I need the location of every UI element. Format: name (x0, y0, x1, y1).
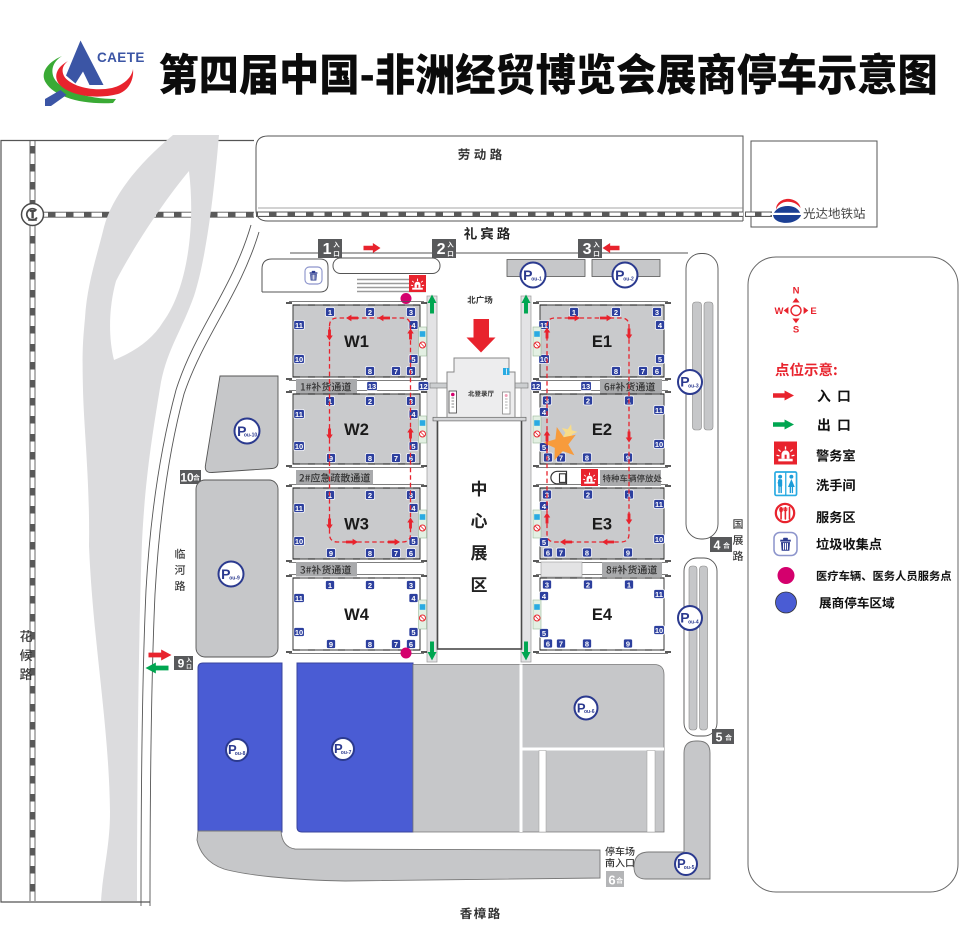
svg-text:13: 13 (368, 382, 376, 391)
svg-text:11: 11 (655, 500, 663, 509)
svg-text:3: 3 (545, 580, 549, 589)
svg-text:8: 8 (585, 548, 589, 557)
svg-text:6: 6 (546, 548, 550, 557)
svg-text:2: 2 (614, 308, 618, 317)
svg-text:8: 8 (368, 549, 372, 558)
svg-text:12: 12 (419, 382, 427, 391)
svg-text:W1: W1 (344, 333, 369, 351)
svg-text:5: 5 (542, 443, 546, 452)
svg-text:9: 9 (626, 548, 630, 557)
svg-text:8: 8 (585, 639, 589, 648)
svg-text:8: 8 (368, 367, 372, 376)
svg-text:5: 5 (411, 355, 415, 364)
svg-text:10: 10 (295, 355, 303, 364)
svg-text:11: 11 (295, 504, 303, 513)
svg-text:W3: W3 (344, 516, 369, 534)
svg-text:6: 6 (546, 639, 550, 648)
svg-text:1: 1 (627, 580, 631, 589)
svg-text:11: 11 (655, 590, 663, 599)
svg-text:CAETE: CAETE (97, 50, 145, 65)
svg-text:W: W (775, 306, 784, 317)
svg-text:10: 10 (180, 471, 194, 485)
svg-text:2: 2 (368, 581, 372, 590)
svg-text:2: 2 (368, 397, 372, 406)
svg-text:S: S (793, 325, 799, 336)
svg-text:ou-7: ou-7 (341, 750, 352, 756)
svg-text:ou-8: ou-8 (235, 751, 246, 757)
svg-text:ou-4: ou-4 (688, 619, 699, 625)
svg-text:13: 13 (582, 382, 590, 391)
svg-text:2: 2 (368, 308, 372, 317)
svg-text:N: N (793, 286, 800, 297)
svg-text:10: 10 (295, 442, 303, 451)
svg-text:3: 3 (409, 581, 413, 590)
svg-text:4: 4 (714, 539, 721, 553)
svg-text:E2: E2 (592, 421, 612, 439)
svg-text:10: 10 (295, 628, 303, 637)
svg-text:2: 2 (368, 491, 372, 500)
svg-text:1: 1 (328, 581, 332, 590)
svg-text:7: 7 (559, 639, 563, 648)
svg-text:11: 11 (655, 406, 663, 415)
svg-text:3: 3 (583, 241, 592, 258)
svg-text:W2: W2 (344, 421, 369, 439)
svg-text:8: 8 (585, 453, 589, 462)
svg-text:5: 5 (411, 537, 415, 546)
svg-text:8: 8 (614, 367, 618, 376)
svg-text:5: 5 (411, 628, 415, 637)
svg-text:9: 9 (626, 639, 630, 648)
svg-text:9: 9 (178, 657, 185, 671)
svg-text:2: 2 (586, 580, 590, 589)
svg-text:7: 7 (559, 453, 563, 462)
svg-text:ou-1: ou-1 (531, 277, 542, 283)
svg-text:6: 6 (409, 640, 413, 649)
svg-text:5: 5 (542, 538, 546, 547)
svg-text:ou-2: ou-2 (623, 277, 634, 283)
svg-text:3: 3 (409, 308, 413, 317)
svg-text:10: 10 (655, 440, 663, 449)
svg-text:ou-5: ou-5 (684, 865, 695, 871)
svg-text:ou-10: ou-10 (244, 433, 258, 439)
svg-text:5: 5 (542, 629, 546, 638)
svg-text:8: 8 (368, 640, 372, 649)
svg-text:10: 10 (295, 537, 303, 546)
svg-text:6: 6 (608, 873, 615, 888)
svg-text:ou-3: ou-3 (688, 383, 699, 389)
svg-text:5: 5 (411, 442, 415, 451)
svg-text:10: 10 (655, 535, 663, 544)
svg-text:9: 9 (329, 640, 333, 649)
svg-text:12: 12 (532, 382, 540, 391)
svg-text:6: 6 (655, 367, 659, 376)
svg-text:1: 1 (328, 308, 332, 317)
svg-text:7: 7 (394, 640, 398, 649)
svg-text:E1: E1 (592, 333, 612, 351)
svg-text:6: 6 (409, 549, 413, 558)
svg-text:ou-6: ou-6 (584, 709, 595, 715)
svg-text:1: 1 (323, 241, 332, 258)
svg-text:7: 7 (394, 454, 398, 463)
svg-text:11: 11 (295, 594, 303, 603)
svg-text:ou-9: ou-9 (229, 576, 240, 582)
svg-text:E: E (810, 306, 816, 317)
svg-text:7: 7 (559, 548, 563, 557)
svg-text:11: 11 (295, 410, 303, 419)
svg-text:2: 2 (437, 241, 446, 258)
svg-text:8: 8 (368, 454, 372, 463)
svg-text:E3: E3 (592, 516, 612, 534)
svg-text:7: 7 (641, 367, 645, 376)
svg-text:2: 2 (586, 396, 590, 405)
svg-text:2: 2 (586, 490, 590, 499)
svg-text:7: 7 (394, 367, 398, 376)
svg-text:E4: E4 (592, 606, 613, 624)
svg-text:3: 3 (655, 308, 659, 317)
svg-text:5: 5 (716, 731, 723, 745)
svg-text:5: 5 (658, 355, 662, 364)
svg-text:7: 7 (394, 549, 398, 558)
svg-text:11: 11 (295, 321, 303, 330)
svg-text:9: 9 (329, 549, 333, 558)
svg-text:W4: W4 (344, 606, 370, 624)
svg-text:10: 10 (655, 626, 663, 635)
